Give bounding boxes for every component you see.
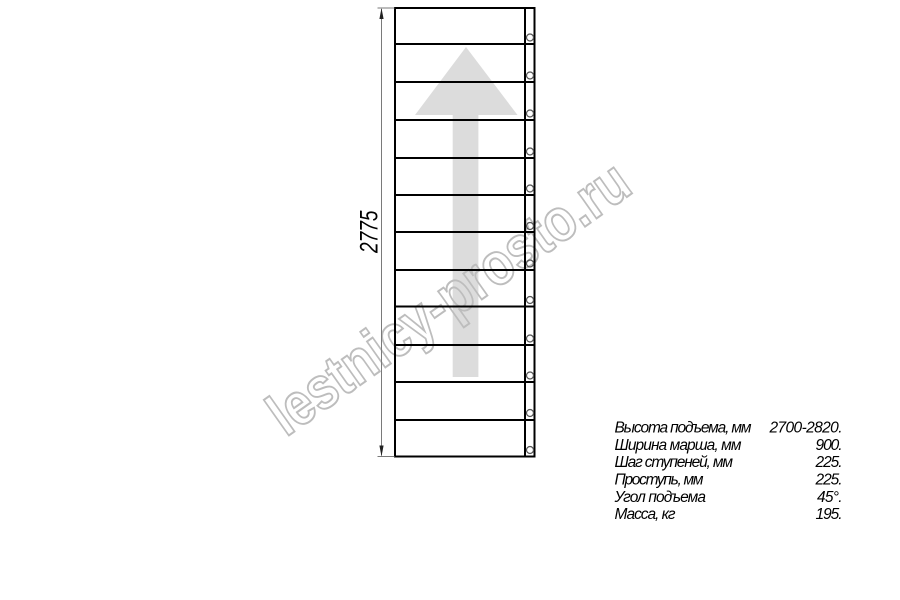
svg-text:2700-2820.: 2700-2820. (769, 420, 843, 437)
svg-text:Проступь, мм: Проступь, мм (615, 472, 704, 489)
svg-text:195.: 195. (816, 506, 843, 523)
svg-text:Угол подъема: Угол подъема (614, 489, 707, 506)
svg-text:lestnicy-prosto.ru: lestnicy-prosto.ru (255, 147, 643, 448)
svg-text:2775: 2775 (356, 210, 384, 253)
svg-text:Ширина марша, мм: Ширина марша, мм (615, 437, 742, 454)
svg-text:Масса, кг: Масса, кг (615, 506, 676, 523)
svg-text:Шаг ступеней, мм: Шаг ступеней, мм (615, 454, 734, 471)
svg-text:225.: 225. (815, 454, 843, 471)
svg-text:225.: 225. (815, 472, 843, 489)
svg-text:45°.: 45°. (817, 489, 843, 506)
svg-text:900.: 900. (816, 437, 843, 454)
svg-text:Высота подъема, мм: Высота подъема, мм (615, 420, 752, 437)
